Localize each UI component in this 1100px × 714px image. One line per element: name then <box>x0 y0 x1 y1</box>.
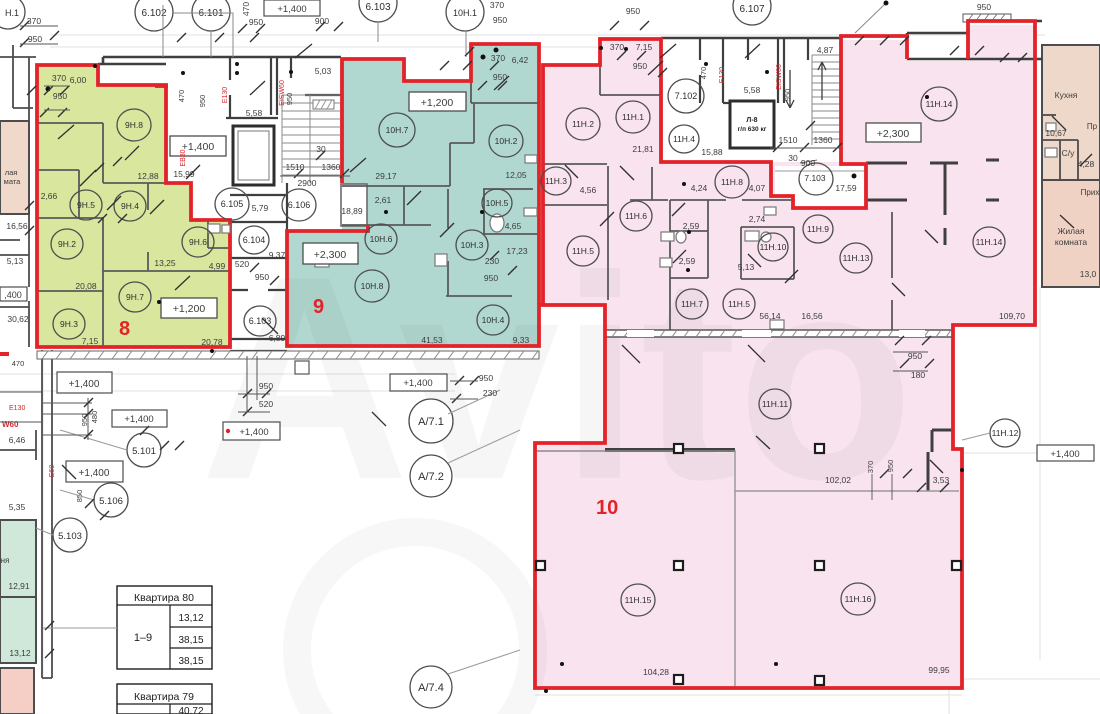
svg-text:2,59: 2,59 <box>683 221 700 231</box>
svg-text:6.104: 6.104 <box>243 235 266 245</box>
svg-text:950: 950 <box>285 93 294 106</box>
svg-text:11Н.15: 11Н.15 <box>625 595 652 605</box>
svg-text:W60: W60 <box>2 420 19 429</box>
svg-text:21,81: 21,81 <box>632 144 654 154</box>
svg-text:Квартира 79: Квартира 79 <box>134 691 194 703</box>
svg-text:Жилая: Жилая <box>1058 226 1085 236</box>
svg-text:950: 950 <box>626 6 640 16</box>
svg-text:+1,400: +1,400 <box>239 427 268 438</box>
svg-text:9Н.4: 9Н.4 <box>121 201 139 211</box>
svg-text:4,24: 4,24 <box>691 183 708 193</box>
svg-text:5.103: 5.103 <box>58 531 82 542</box>
svg-text:4,07: 4,07 <box>749 183 766 193</box>
svg-text:11Н.4: 11Н.4 <box>673 134 695 144</box>
svg-text:370: 370 <box>52 73 66 83</box>
svg-text:7,15: 7,15 <box>636 42 653 52</box>
svg-text:370: 370 <box>27 16 41 26</box>
svg-text:1–9: 1–9 <box>134 632 152 644</box>
svg-text:30,62: 30,62 <box>7 314 29 324</box>
svg-text:7.103: 7.103 <box>804 173 826 183</box>
svg-text:Пр: Пр <box>1087 122 1098 131</box>
svg-text:+1,200: +1,200 <box>421 97 454 109</box>
svg-text:11Н.5: 11Н.5 <box>728 299 750 309</box>
svg-text:Прих: Прих <box>1081 188 1100 197</box>
svg-text:950: 950 <box>484 273 498 283</box>
svg-text:+1,400: +1,400 <box>69 379 100 390</box>
svg-text:470: 470 <box>241 2 251 16</box>
svg-text:6,89: 6,89 <box>269 333 286 343</box>
svg-text:11Н.14: 11Н.14 <box>976 237 1003 247</box>
svg-text:,400: ,400 <box>4 290 22 300</box>
svg-text:10Н.1: 10Н.1 <box>453 8 477 18</box>
svg-text:2,59: 2,59 <box>679 256 696 266</box>
svg-text:950: 950 <box>53 91 67 101</box>
svg-text:470: 470 <box>177 90 186 103</box>
svg-text:9Н.8: 9Н.8 <box>125 120 143 130</box>
svg-text:2,61: 2,61 <box>375 195 392 205</box>
svg-text:комната: комната <box>1055 237 1087 247</box>
svg-text:13,0: 13,0 <box>1080 269 1097 279</box>
svg-text:3,53: 3,53 <box>933 475 950 485</box>
svg-text:мата: мата <box>4 177 22 186</box>
svg-text:38,15: 38,15 <box>178 635 203 646</box>
svg-text:7.102: 7.102 <box>675 91 698 101</box>
svg-text:9Н.2: 9Н.2 <box>58 239 76 249</box>
svg-text:ЕISW60: ЕISW60 <box>776 64 783 90</box>
svg-text:11Н.7: 11Н.7 <box>681 299 703 309</box>
svg-text:С/у: С/у <box>1062 148 1076 158</box>
svg-text:11Н.5: 11Н.5 <box>572 246 594 256</box>
svg-text:5,79: 5,79 <box>252 203 269 213</box>
svg-text:30: 30 <box>316 144 326 154</box>
svg-text:4,99: 4,99 <box>209 261 226 271</box>
svg-text:+1,400: +1,400 <box>79 468 110 479</box>
svg-text:ня: ня <box>1 556 10 565</box>
svg-text:9,37: 9,37 <box>269 250 286 260</box>
svg-text:12,91: 12,91 <box>8 581 30 591</box>
svg-text:40,72: 40,72 <box>178 706 203 714</box>
svg-text:8: 8 <box>119 318 130 340</box>
svg-text:12,05: 12,05 <box>505 170 527 180</box>
svg-text:9,33: 9,33 <box>513 335 530 345</box>
svg-text:10: 10 <box>596 497 618 519</box>
svg-text:470: 470 <box>699 67 708 80</box>
svg-text:+1,400: +1,400 <box>124 414 153 425</box>
svg-text:11Н.13: 11Н.13 <box>843 253 870 263</box>
svg-text:370: 370 <box>490 0 504 10</box>
svg-text:17,23: 17,23 <box>506 246 528 256</box>
svg-text:Квартира 80: Квартира 80 <box>134 592 194 604</box>
svg-text:Кухня: Кухня <box>1055 90 1078 100</box>
svg-text:9Н.6: 9Н.6 <box>189 237 207 247</box>
svg-text:9Н.7: 9Н.7 <box>126 292 144 302</box>
svg-text:950: 950 <box>633 61 647 71</box>
svg-text:10Н.3: 10Н.3 <box>461 240 484 250</box>
svg-text:11Н.3: 11Н.3 <box>545 176 567 186</box>
svg-text:104,28: 104,28 <box>643 667 669 677</box>
svg-text:10Н.2: 10Н.2 <box>495 136 518 146</box>
svg-text:10Н.7: 10Н.7 <box>386 125 409 135</box>
svg-text:17,59: 17,59 <box>835 183 857 193</box>
svg-text:180: 180 <box>911 370 925 380</box>
svg-text:900: 900 <box>801 158 815 168</box>
svg-text:6,46: 6,46 <box>9 435 26 445</box>
svg-text:6.106: 6.106 <box>288 200 311 210</box>
svg-text:10Н.6: 10Н.6 <box>370 234 393 244</box>
svg-text:5,35: 5,35 <box>9 502 26 512</box>
svg-text:29,17: 29,17 <box>375 171 397 181</box>
svg-text:11Н.1: 11Н.1 <box>622 112 644 122</box>
svg-text:520: 520 <box>235 259 249 269</box>
svg-text:12,88: 12,88 <box>137 171 159 181</box>
svg-text:6,00: 6,00 <box>70 75 87 85</box>
svg-text:950: 950 <box>783 89 792 102</box>
svg-text:950: 950 <box>493 72 507 82</box>
svg-text:+1,200: +1,200 <box>173 303 206 315</box>
svg-text:6.107: 6.107 <box>739 4 764 15</box>
svg-text:11Н.6: 11Н.6 <box>625 211 647 221</box>
svg-text:950: 950 <box>249 17 263 27</box>
svg-text:10Н.8: 10Н.8 <box>361 281 384 291</box>
svg-text:5.106: 5.106 <box>99 496 123 507</box>
svg-text:+1,400: +1,400 <box>403 378 432 389</box>
svg-text:20,78: 20,78 <box>201 337 223 347</box>
svg-text:109,70: 109,70 <box>999 311 1025 321</box>
svg-text:11Н.2: 11Н.2 <box>572 119 594 129</box>
svg-text:11Н.16: 11Н.16 <box>845 594 872 604</box>
svg-text:950: 950 <box>493 15 507 25</box>
svg-text:9Н.5: 9Н.5 <box>77 200 95 210</box>
svg-text:370: 370 <box>866 461 875 474</box>
svg-text:480: 480 <box>90 411 99 424</box>
svg-text:г/п 630 кг: г/п 630 кг <box>738 126 767 133</box>
svg-text:ЕВ30: ЕВ30 <box>180 149 187 166</box>
svg-text:950: 950 <box>977 2 991 12</box>
svg-text:5,58: 5,58 <box>744 85 761 95</box>
svg-text:Е60: Е60 <box>49 465 56 478</box>
svg-text:11Н.10: 11Н.10 <box>760 242 787 252</box>
svg-text:11Н.14: 11Н.14 <box>926 99 953 109</box>
svg-text:30: 30 <box>788 153 798 163</box>
svg-text:А/7.4: А/7.4 <box>418 682 444 694</box>
svg-text:11Н.9: 11Н.9 <box>807 224 829 234</box>
svg-text:4,56: 4,56 <box>580 185 597 195</box>
svg-text:6.105: 6.105 <box>221 199 244 209</box>
svg-text:4,65: 4,65 <box>505 221 522 231</box>
svg-text:6,42: 6,42 <box>512 55 529 65</box>
svg-text:Е130: Е130 <box>719 67 726 83</box>
svg-text:5,13: 5,13 <box>7 256 24 266</box>
svg-text:Л-8: Л-8 <box>746 117 757 124</box>
svg-text:950: 950 <box>198 95 207 108</box>
svg-text:41,53: 41,53 <box>421 335 443 345</box>
svg-text:13,12: 13,12 <box>9 648 31 658</box>
svg-text:470: 470 <box>12 359 25 368</box>
svg-text:+1,400: +1,400 <box>1050 449 1079 460</box>
svg-text:10,67: 10,67 <box>1045 128 1067 138</box>
svg-text:1360: 1360 <box>814 135 833 145</box>
svg-text:Н.1: Н.1 <box>5 8 19 18</box>
svg-text:А/7.2: А/7.2 <box>418 471 444 483</box>
svg-text:1360: 1360 <box>322 162 341 172</box>
svg-text:11Н.11: 11Н.11 <box>762 399 788 409</box>
svg-text:лая: лая <box>5 168 18 177</box>
svg-text:5.101: 5.101 <box>132 446 156 457</box>
svg-text:2,66: 2,66 <box>41 191 58 201</box>
svg-text:15,88: 15,88 <box>701 147 723 157</box>
svg-text:950: 950 <box>28 34 42 44</box>
svg-text:56,14: 56,14 <box>759 311 781 321</box>
svg-text:6.103: 6.103 <box>365 2 390 13</box>
svg-text:5,13: 5,13 <box>738 262 755 272</box>
svg-text:950: 950 <box>255 272 269 282</box>
svg-text:5,58: 5,58 <box>246 108 263 118</box>
svg-text:Е130: Е130 <box>9 405 25 412</box>
svg-text:950: 950 <box>479 373 493 383</box>
svg-text:+2,300: +2,300 <box>314 249 347 261</box>
svg-text:2900: 2900 <box>298 178 317 188</box>
svg-text:9: 9 <box>313 296 324 318</box>
svg-text:11Н.12: 11Н.12 <box>992 428 1019 438</box>
svg-text:13,25: 13,25 <box>154 258 176 268</box>
svg-text:38,15: 38,15 <box>178 656 203 667</box>
svg-text:5,03: 5,03 <box>315 66 332 76</box>
svg-text:99,95: 99,95 <box>928 665 950 675</box>
svg-text:102,02: 102,02 <box>825 475 851 485</box>
svg-text:10Н.4: 10Н.4 <box>482 315 505 325</box>
svg-text:+1,400: +1,400 <box>277 4 306 15</box>
svg-text:370: 370 <box>610 42 624 52</box>
svg-text:2,74: 2,74 <box>749 214 766 224</box>
svg-text:11Н.8: 11Н.8 <box>721 177 743 187</box>
svg-text:20,08: 20,08 <box>75 281 97 291</box>
svg-text:4,87: 4,87 <box>817 45 834 55</box>
svg-text:230: 230 <box>483 388 497 398</box>
svg-text:18,89: 18,89 <box>341 206 363 216</box>
svg-text:7,15: 7,15 <box>82 336 99 346</box>
svg-text:+2,300: +2,300 <box>877 128 910 140</box>
svg-text:ЕISW60: ЕISW60 <box>279 80 286 106</box>
svg-text:А/7.1: А/7.1 <box>418 416 444 428</box>
svg-text:950: 950 <box>908 351 922 361</box>
svg-text:Е130: Е130 <box>222 87 229 103</box>
svg-text:13,12: 13,12 <box>178 613 203 624</box>
svg-text:10Н.5: 10Н.5 <box>486 198 509 208</box>
svg-text:520: 520 <box>259 399 273 409</box>
svg-text:16,56: 16,56 <box>801 311 823 321</box>
svg-text:16,56: 16,56 <box>6 221 28 231</box>
svg-text:9Н.3: 9Н.3 <box>60 319 78 329</box>
